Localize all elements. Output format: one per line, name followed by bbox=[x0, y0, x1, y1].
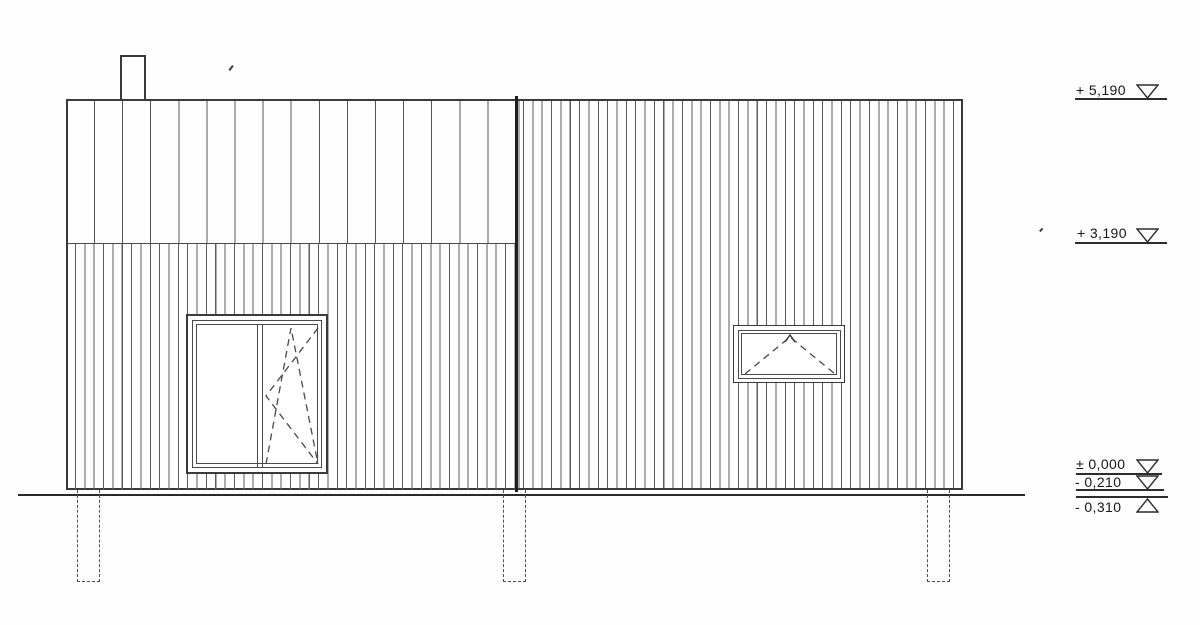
level-triangle-down-icon bbox=[1136, 475, 1159, 490]
scan-speck bbox=[1039, 228, 1043, 232]
level-label-5190: + 5,190 bbox=[1076, 83, 1126, 98]
scan-speck bbox=[228, 65, 233, 71]
tilt-turn-opening-icon bbox=[263, 325, 321, 467]
left-window bbox=[186, 314, 328, 474]
section-divider-line bbox=[515, 96, 518, 492]
level-label-0310: - 0,310 bbox=[1075, 500, 1121, 515]
foundation-pier bbox=[927, 490, 950, 582]
level-line-5190 bbox=[1075, 98, 1167, 100]
level-line-0210 bbox=[1076, 489, 1164, 491]
foundation-pier bbox=[503, 490, 526, 582]
level-label-0000: ± 0,000 bbox=[1076, 457, 1125, 472]
right-window bbox=[733, 325, 845, 383]
level-line-3190 bbox=[1075, 242, 1167, 244]
facade-right-block bbox=[517, 99, 963, 490]
foundation-pier bbox=[77, 490, 100, 582]
left-block-upper-cladding bbox=[68, 101, 517, 244]
tilt-opening-icon bbox=[742, 333, 838, 377]
chimney bbox=[120, 55, 146, 101]
level-label-0210: - 0,210 bbox=[1075, 475, 1121, 490]
level-triangle-down-icon bbox=[1136, 228, 1159, 243]
level-label-3190: + 3,190 bbox=[1077, 226, 1127, 241]
level-triangle-down-icon bbox=[1136, 84, 1159, 99]
level-triangle-down-icon bbox=[1136, 459, 1159, 474]
elevation-drawing: + 5,190 + 3,190 ± 0,000 - 0,210 - 0,310 bbox=[0, 0, 1200, 625]
level-triangle-up-icon bbox=[1136, 498, 1159, 513]
